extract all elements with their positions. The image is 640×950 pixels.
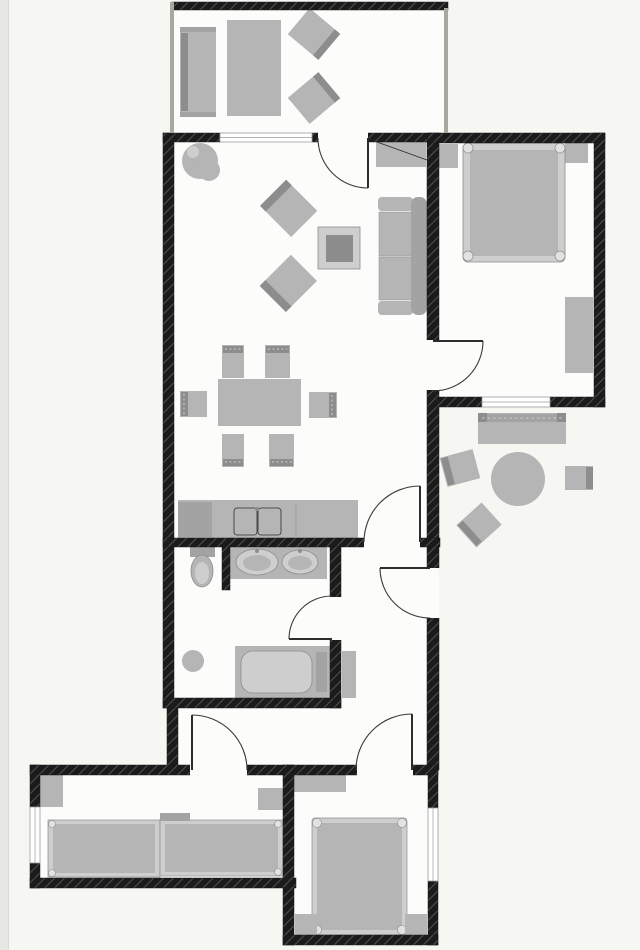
wall — [427, 390, 439, 538]
wall — [30, 765, 40, 807]
window-bedroom-south — [482, 397, 550, 407]
wall — [172, 2, 448, 10]
balcony-table — [227, 20, 281, 116]
wall — [428, 765, 438, 808]
scan-edge — [0, 0, 8, 950]
door-living-hall-gap — [364, 538, 420, 547]
dining-chair-n2 — [265, 345, 290, 378]
door-entry-gap — [427, 568, 439, 618]
dining-table — [218, 379, 301, 426]
wall — [283, 935, 438, 945]
wall — [330, 546, 341, 597]
wall — [247, 765, 357, 775]
door-small-bedroom-left-gap — [190, 765, 247, 775]
bedroom-bed — [463, 143, 565, 262]
small-bedroom-right-dresser — [294, 775, 346, 792]
wall — [222, 546, 230, 590]
dining-chair-n1 — [222, 345, 244, 378]
door-bedroom-gap — [427, 340, 439, 390]
wall — [428, 397, 482, 407]
door-bathroom-gap — [330, 597, 341, 640]
coffee-table — [318, 227, 360, 269]
terrace-round-table — [491, 452, 545, 506]
door-small-bedroom-right-gap — [357, 765, 413, 775]
wall — [420, 538, 440, 547]
window-small-bedroom-west — [30, 807, 40, 863]
entry-sideboard — [376, 141, 427, 167]
bedroom-nightstand-w — [438, 144, 458, 168]
wall — [368, 133, 428, 142]
wall — [30, 765, 190, 775]
small-bedroom-left-cabinet-ne — [258, 788, 285, 810]
bedroom-nightstand-e — [565, 143, 588, 163]
dining-chair-e — [309, 392, 337, 418]
dining-chair-s1 — [222, 434, 244, 467]
wall — [550, 397, 605, 407]
balcony-bench — [180, 27, 216, 117]
wall — [167, 708, 178, 768]
bathtub — [235, 646, 332, 698]
wall — [312, 133, 318, 142]
small-bedroom-left-bed-2 — [160, 820, 283, 876]
room-corridor — [178, 708, 427, 765]
bedroom-dresser — [565, 297, 593, 373]
wall — [163, 538, 364, 547]
balcony-rail — [170, 2, 174, 133]
window-small-bedroom-east — [428, 808, 438, 881]
wall — [163, 698, 341, 708]
small-bedroom-left-tray — [160, 813, 190, 821]
bath-vanity — [228, 547, 327, 579]
floor-plan-svg — [0, 0, 640, 950]
terrace-chair-e — [565, 466, 593, 490]
door-balcony-gap — [318, 133, 368, 142]
wall — [283, 765, 294, 945]
sofa — [378, 197, 427, 315]
small-bedroom-left-bed-1 — [48, 820, 160, 877]
kitchen-counter — [178, 500, 358, 538]
balcony-rail — [444, 8, 448, 133]
wall — [427, 618, 439, 770]
terrace-bench — [478, 413, 566, 444]
dining-chair-s2 — [269, 434, 294, 467]
small-bedroom-right-nightstand-w — [295, 914, 317, 935]
floor-plan-page — [0, 0, 640, 950]
wall — [427, 546, 439, 568]
wall — [594, 133, 605, 407]
window-living-north — [220, 133, 312, 142]
hall-closet — [342, 651, 356, 698]
wall — [428, 133, 605, 143]
small-bedroom-left-cabinet-nw — [40, 774, 63, 807]
bath-stool — [182, 650, 204, 672]
wall — [30, 878, 296, 888]
wall — [163, 133, 174, 708]
wall — [427, 133, 439, 340]
small-bedroom-right-bed — [312, 818, 407, 935]
dining-chair-w — [180, 391, 207, 417]
small-bedroom-right-nightstand-e — [405, 914, 427, 935]
